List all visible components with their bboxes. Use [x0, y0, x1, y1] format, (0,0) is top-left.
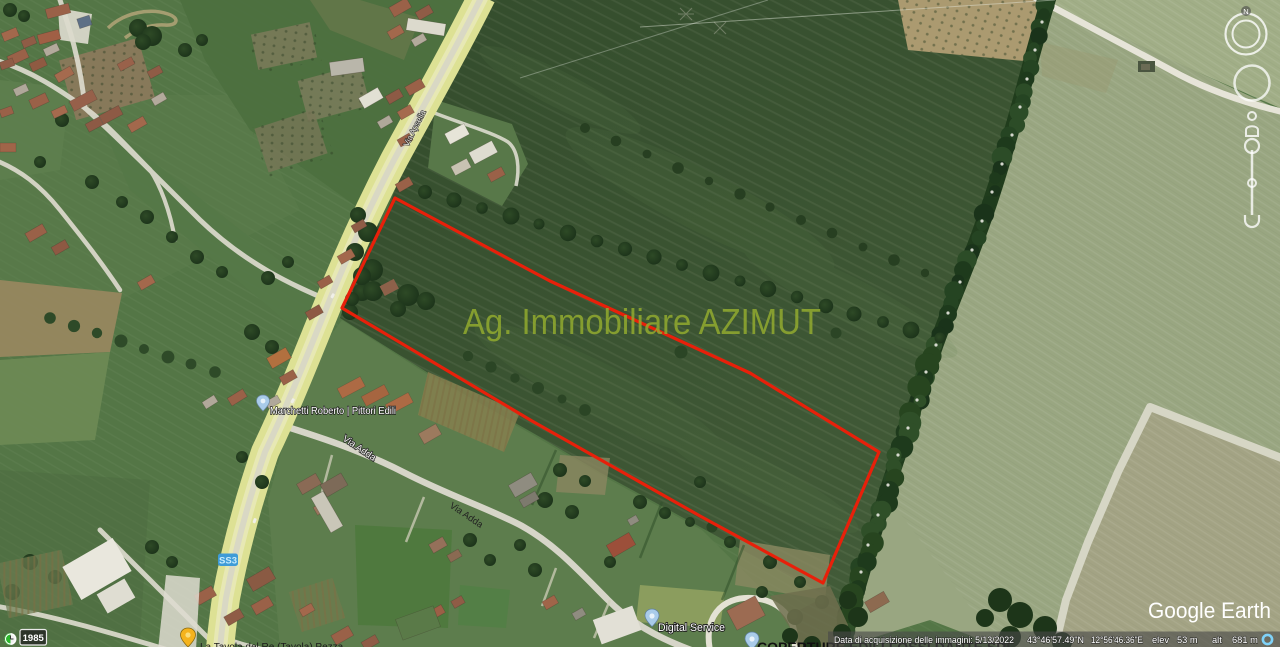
svg-text:681 m: 681 m [1232, 635, 1258, 645]
svg-text:53 m: 53 m [1177, 635, 1198, 645]
svg-text:SS3: SS3 [219, 556, 237, 567]
svg-text:La Tavola del Re (Tavola) Pezz: La Tavola del Re (Tavola) Pezza [200, 642, 344, 647]
svg-text:1985: 1985 [23, 633, 45, 644]
svg-text:Data di acquisizione delle imm: Data di acquisizione delle immagini: 5/1… [834, 635, 1014, 645]
svg-text:Marchetti Roberto | Pittori Ed: Marchetti Roberto | Pittori Edili [270, 405, 396, 417]
svg-text:Google Earth: Google Earth [1148, 598, 1271, 623]
svg-text:Ag. Immobiliare AZIMUT: Ag. Immobiliare AZIMUT [463, 301, 821, 342]
svg-text:alt: alt [1212, 635, 1222, 645]
svg-text:Digital Service: Digital Service [658, 622, 725, 634]
svg-text:43°46'57.49"N: 43°46'57.49"N [1027, 635, 1084, 645]
svg-text:12°56'46.36"E: 12°56'46.36"E [1091, 635, 1143, 645]
svg-text:elev: elev [1152, 635, 1169, 645]
svg-text:N: N [1243, 7, 1248, 16]
